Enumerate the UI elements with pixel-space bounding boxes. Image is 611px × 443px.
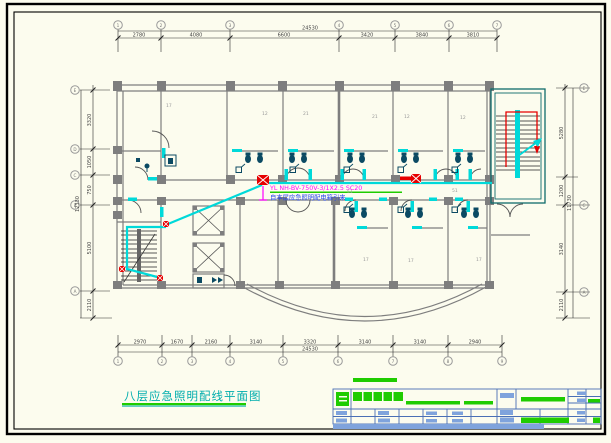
dim-top-total: 24530	[302, 26, 318, 32]
dim-bot-2: 2160	[205, 340, 218, 346]
dim-right-total: 11730	[567, 195, 573, 211]
drawing-sheet: 1 2 3 4 5 6 7 2780 4080 6600 3420 3840 3…	[0, 0, 611, 443]
dim-bot-6: 3140	[414, 340, 427, 346]
dim-bot-0: 2970	[134, 340, 147, 346]
bubble-top-6: 6	[448, 23, 451, 28]
bubble-top-2: 2	[160, 23, 163, 28]
floor-plan-walls	[117, 85, 490, 321]
room-label: 21	[303, 111, 309, 117]
design-institute-logo	[336, 392, 349, 406]
bubble-bot-5: 5	[282, 359, 285, 364]
dim-top-3: 3420	[361, 33, 374, 39]
bubble-top-4: 4	[338, 23, 341, 28]
grid-dimensions-top: 1 2 3 4 5 6 7 2780 4080 6600 3420 3840 3…	[114, 21, 502, 52]
bubble-bot-9: 9	[501, 359, 504, 364]
room-label: 21	[372, 114, 378, 120]
bubble-top-3: 3	[229, 23, 232, 28]
drawing-title: 八层应急照明配线平面图	[124, 389, 262, 403]
bubble-right-3: A	[583, 290, 586, 295]
dim-bot-1: 1670	[171, 340, 184, 346]
title-block	[333, 378, 601, 429]
bubble-left-5: A	[74, 289, 77, 294]
title-underline-cyan	[122, 406, 246, 407]
dim-left-total: 12330	[75, 196, 81, 212]
room-label: 17	[363, 257, 369, 263]
grid-dimensions-bottom: 1 2 3 4 5 6 7 8 9 2970 1670 2160 3140 33…	[114, 335, 507, 365]
bubble-right-2: C	[583, 203, 586, 208]
bubble-bot-2: 2	[161, 359, 164, 364]
grid-dimensions-right: E C A 5280 1200 3140 2110 11730	[556, 84, 590, 321]
bubble-bot-6: 6	[337, 359, 340, 364]
dim-left-4: 2110	[87, 299, 93, 312]
title-block-green-marks	[336, 392, 600, 423]
room-label: 12	[404, 114, 410, 120]
stair-escape-route	[506, 112, 540, 167]
design-institute-name-bar	[353, 392, 403, 401]
room-label: 17	[166, 103, 172, 109]
bubble-bot-8: 8	[447, 359, 450, 364]
room-label: 17	[476, 257, 482, 263]
dim-top-0: 2780	[133, 33, 146, 39]
bubble-bot-7: 7	[392, 359, 395, 364]
room-label: 12	[262, 111, 268, 117]
drawing-title-block: 八层应急照明配线平面图	[122, 389, 262, 407]
bubble-top-7: 7	[496, 23, 499, 28]
dim-right-1: 1200	[559, 185, 565, 198]
feeder-source-text: 自本层应急照明配电箱引来	[270, 193, 346, 202]
project-bar	[353, 378, 397, 382]
dim-left-3: 5100	[87, 242, 93, 255]
dim-left-1: 1050	[87, 156, 93, 169]
grid-bubbles-right	[580, 84, 589, 297]
dim-right-3: 2110	[559, 299, 565, 312]
grid-bubbles-left	[71, 86, 80, 296]
dim-left-2: 750	[87, 185, 93, 195]
dim-right-0: 5280	[559, 127, 565, 140]
title-block-bottom-bar	[333, 424, 544, 429]
bubble-left-3: C	[74, 173, 77, 178]
elevator-shafts	[193, 206, 224, 288]
dim-bot-7: 2940	[469, 340, 482, 346]
stair-wiring-riser	[515, 110, 520, 178]
bubble-right-1: E	[583, 86, 586, 91]
dim-bot-3: 3140	[250, 340, 263, 346]
title-underline-green	[122, 403, 246, 405]
room-label: 17	[408, 258, 414, 264]
dim-left-0: 3320	[87, 114, 93, 127]
cad-canvas: 1 2 3 4 5 6 7 2780 4080 6600 3420 3840 3…	[0, 0, 611, 443]
room-label: 12	[460, 115, 466, 121]
dim-top-4: 3840	[416, 33, 429, 39]
dim-top-5: 3810	[467, 33, 480, 39]
sheet-frame	[7, 4, 605, 434]
curved-facade	[243, 284, 486, 321]
dim-bot-total: 24530	[302, 347, 318, 353]
bubble-top-1: 1	[117, 23, 120, 28]
bubble-left-1: E	[74, 88, 77, 93]
room-label: 51	[452, 188, 458, 194]
bubble-left-2: D	[73, 147, 76, 152]
bubble-bot-1: 1	[117, 359, 120, 364]
grid-dimensions-left: E D C B A 3320 1050 750 5100 2110 12330	[71, 85, 112, 321]
right-stair-tower	[491, 89, 545, 235]
room-label: 51	[347, 189, 353, 195]
dim-bot-5: 3140	[359, 340, 372, 346]
dim-top-2: 6600	[278, 33, 291, 39]
dim-bot-4: 3320	[304, 340, 317, 346]
dim-right-2: 3140	[559, 243, 565, 256]
bubble-bot-3: 3	[191, 359, 194, 364]
bubble-bot-4: 4	[229, 359, 232, 364]
bubble-top-5: 5	[394, 23, 397, 28]
dim-top-1: 4080	[190, 33, 203, 39]
